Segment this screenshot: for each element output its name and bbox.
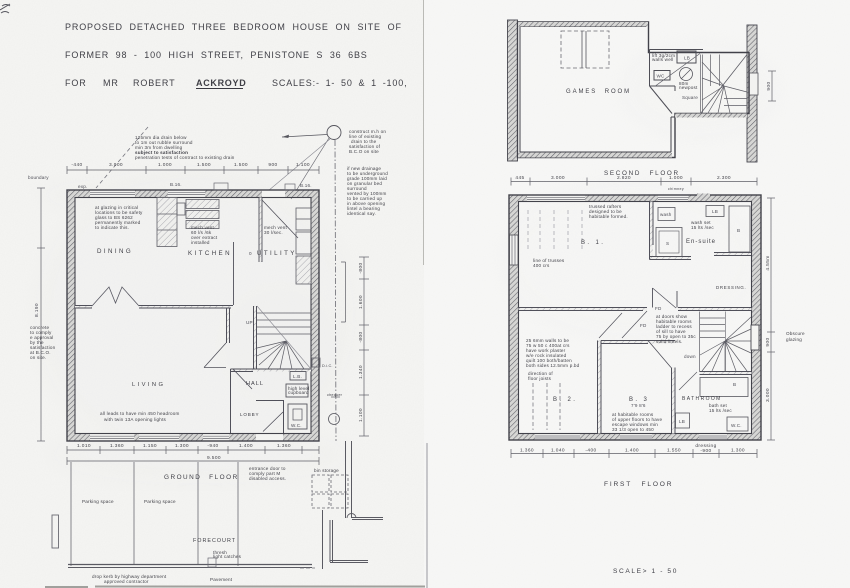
svg-text:PROPOSED DETACHED THREE BEDROO: PROPOSED DETACHED THREE BEDROOM HOUSE ON… — [65, 22, 402, 32]
svg-text:-800: -800 — [358, 262, 364, 273]
svg-text:down: down — [684, 354, 696, 359]
svg-text:3.000: 3.000 — [765, 388, 771, 402]
svg-text:FORMER 98 - 100 HIGH STREET, P: FORMER 98 - 100 HIGH STREET, PENISTONE S… — [65, 50, 368, 60]
svg-text:W.C.: W.C. — [291, 423, 302, 428]
svg-text:cupboard: cupboard — [288, 390, 309, 395]
svg-text:Parking space: Parking space — [82, 499, 114, 504]
svg-text:FD: FD — [655, 306, 662, 311]
svg-text:S: S — [666, 241, 669, 246]
svg-text:1.360: 1.360 — [520, 448, 534, 454]
svg-text:FIRST FLOOR: FIRST FLOOR — [604, 481, 673, 488]
svg-text:LB: LB — [684, 56, 690, 61]
svg-text:L.B.: L.B. — [293, 374, 302, 379]
svg-text:3.000: 3.000 — [551, 175, 565, 181]
svg-text:LB: LB — [679, 419, 685, 424]
svg-text:FD: FD — [640, 323, 647, 328]
svg-text:ACKROYD: ACKROYD — [196, 78, 246, 88]
svg-text:2.820: 2.820 — [617, 175, 631, 181]
svg-text:B. 1.: B. 1. — [581, 240, 605, 246]
svg-text:15 lts /sec: 15 lts /sec — [691, 225, 714, 230]
svg-text:1.040: 1.040 — [551, 448, 565, 454]
svg-text:3.000: 3.000 — [109, 162, 123, 168]
svg-text:900: 900 — [766, 81, 772, 90]
svg-text:penetration tests of contract: penetration tests of contract to existin… — [135, 155, 235, 160]
svg-text:newpost: newpost — [679, 85, 698, 90]
svg-text:15 lts /sec: 15 lts /sec — [709, 408, 732, 413]
svg-text:glazing: glazing — [786, 337, 802, 342]
svg-text:LB: LB — [712, 209, 718, 214]
svg-text:1.300: 1.300 — [175, 443, 189, 449]
svg-text:all leads to have min 450 h: all leads to have min 450 headroom — [100, 411, 180, 416]
svg-text:floor joists: floor joists — [528, 376, 552, 381]
svg-text:-940: -940 — [207, 443, 218, 449]
svg-text:1.100: 1.100 — [358, 408, 364, 422]
svg-text:on site.: on site. — [30, 355, 46, 360]
svg-text:wash: wash — [660, 212, 672, 217]
svg-text:-400: -400 — [585, 448, 596, 454]
svg-text:30 l/sec.: 30 l/sec. — [264, 230, 283, 235]
svg-text:ROBERT: ROBERT — [133, 78, 175, 88]
svg-text:Pavement: Pavement — [210, 577, 233, 582]
svg-text:boundary: boundary — [28, 175, 49, 180]
svg-text:KITCHEN: KITCHEN — [188, 250, 232, 257]
svg-text:445: 445 — [515, 175, 524, 181]
svg-text:1.400: 1.400 — [625, 448, 639, 454]
svg-text:400 crs: 400 crs — [533, 263, 550, 268]
svg-text:DRESSING.: DRESSING. — [716, 285, 746, 290]
svg-text:chimney: chimney — [668, 187, 684, 191]
svg-text:walls well: walls well — [652, 57, 673, 62]
svg-text:1.600: 1.600 — [358, 295, 364, 309]
svg-text:chequer: chequer — [327, 393, 343, 397]
svg-text:900: 900 — [765, 337, 771, 346]
svg-text:identical say.: identical say. — [347, 211, 376, 216]
svg-text:-440: -440 — [71, 162, 82, 168]
svg-text:to indicate this.: to indicate this. — [95, 225, 129, 230]
svg-text:SCALE> 1 - 50: SCALE> 1 - 50 — [613, 568, 678, 575]
svg-text:solid lintels.: solid lintels. — [656, 339, 683, 344]
svg-text:B. 2.: B. 2. — [553, 397, 577, 403]
svg-text:1.360: 1.360 — [277, 443, 291, 449]
svg-text:FORECOURT: FORECOURT — [193, 538, 236, 544]
svg-text:exp.: exp. — [78, 184, 87, 189]
svg-text:900: 900 — [268, 162, 277, 168]
svg-text:W.C.: W.C. — [731, 423, 742, 428]
svg-text:bin storage: bin storage — [314, 468, 339, 473]
svg-text:with twin 13A opening ligh: with twin 13A opening lights — [104, 417, 167, 422]
svg-text:4.55m: 4.55m — [765, 255, 771, 270]
svg-text:1.400: 1.400 — [239, 443, 253, 449]
svg-text:Obscure: Obscure — [786, 331, 805, 336]
svg-text:9.500: 9.500 — [207, 455, 221, 461]
svg-text:disabled access.: disabled access. — [249, 476, 286, 481]
svg-text:B.16.: B.16. — [300, 183, 312, 188]
svg-text:1.000: 1.000 — [158, 162, 172, 168]
svg-text:UTILITY: UTILITY — [257, 250, 297, 257]
svg-text:1.150: 1.150 — [143, 443, 157, 449]
svg-text:MR: MR — [103, 78, 119, 88]
svg-text:1.000: 1.000 — [669, 175, 683, 181]
svg-text:DINING: DINING — [97, 248, 133, 255]
svg-text:GAMES ROOM: GAMES ROOM — [566, 89, 631, 95]
svg-text:-800: -800 — [358, 331, 364, 342]
svg-text:1.100: 1.100 — [296, 162, 310, 168]
svg-text:1.340: 1.340 — [358, 365, 364, 379]
svg-text:B.C.O on site: B.C.O on site — [349, 149, 379, 154]
svg-text:0: 0 — [249, 251, 252, 256]
svg-text:1.300: 1.300 — [731, 448, 745, 454]
svg-text:FOR: FOR — [65, 78, 87, 88]
svg-text:LIVING: LIVING — [132, 382, 165, 388]
svg-text:8.190: 8.190 — [34, 303, 40, 317]
svg-text:approved contractor: approved contractor — [104, 579, 149, 584]
svg-text:WC: WC — [657, 74, 666, 79]
svg-text:BATHROOM: BATHROOM — [682, 396, 722, 402]
svg-text:HALL: HALL — [246, 381, 264, 387]
svg-text:LOBBY: LOBBY — [240, 412, 259, 417]
svg-text:SCALES:- 1- 50 & 1 -100,: SCALES:- 1- 50 & 1 -100, — [272, 78, 407, 88]
svg-text:B.16.: B.16. — [170, 182, 182, 187]
svg-text:33 1/3 open to 450: 33 1/3 open to 450 — [612, 427, 654, 432]
svg-text:En-suite: En-suite — [686, 239, 716, 245]
svg-text:habitable formed.: habitable formed. — [589, 214, 628, 219]
svg-text:D.i.C.: D.i.C. — [322, 364, 333, 368]
svg-text:1.500: 1.500 — [234, 162, 248, 168]
svg-text:light catches: light catches — [213, 554, 242, 559]
svg-text:GROUND FLOOR: GROUND FLOOR — [164, 474, 239, 481]
svg-text:B: B — [737, 228, 740, 233]
svg-text:installed: installed — [191, 240, 210, 245]
svg-text:Square: Square — [682, 95, 698, 100]
svg-text:B: B — [733, 382, 736, 387]
svg-text:1.010: 1.010 — [77, 443, 91, 449]
svg-text:UP: UP — [246, 320, 253, 325]
svg-text:both sides 12.5mm p.bd: both sides 12.5mm p.bd — [526, 363, 580, 368]
svg-text:-900: -900 — [700, 448, 711, 454]
svg-text:7'9 8'6: 7'9 8'6 — [631, 403, 646, 408]
svg-text:2.300: 2.300 — [717, 175, 731, 181]
svg-text:1.500: 1.500 — [197, 162, 211, 168]
svg-text:Parking space: Parking space — [144, 499, 176, 504]
svg-text:1.360: 1.360 — [110, 443, 124, 449]
svg-text:1.550: 1.550 — [667, 448, 681, 454]
